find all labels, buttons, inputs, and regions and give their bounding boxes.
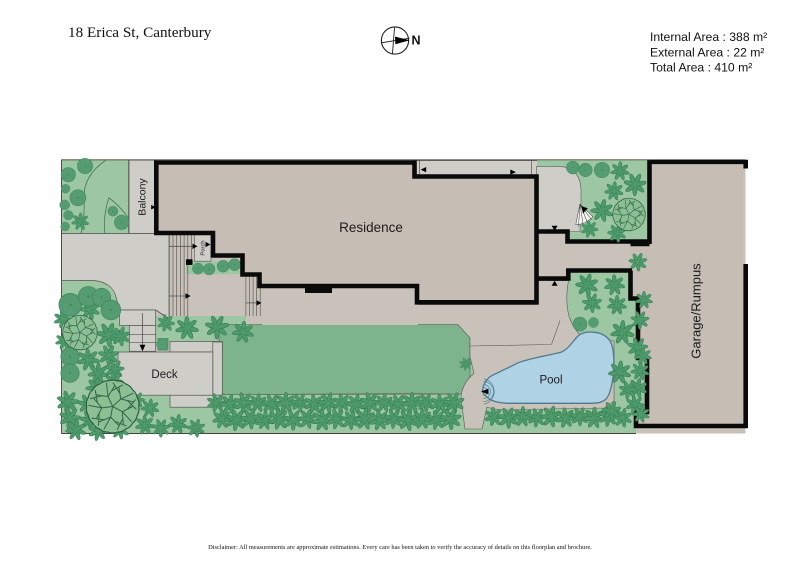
svg-text:18 Erica St, Canterbury: 18 Erica St, Canterbury [68,24,212,41]
svg-text:N: N [412,34,421,48]
svg-text:Internal Area : 388 m²: Internal Area : 388 m² [650,30,767,44]
svg-text:Garage/Rumpus: Garage/Rumpus [689,263,704,359]
svg-text:Disclaimer: All measurements a: Disclaimer: All measurements are approxi… [208,544,592,551]
svg-text:Pool: Pool [539,374,562,386]
svg-text:Deck: Deck [151,369,177,381]
svg-text:Residence: Residence [339,220,403,235]
svg-text:Balcony: Balcony [137,178,149,216]
svg-text:External Area : 22 m²: External Area : 22 m² [650,45,764,59]
svg-text:Total Area : 410 m²: Total Area : 410 m² [650,61,752,75]
